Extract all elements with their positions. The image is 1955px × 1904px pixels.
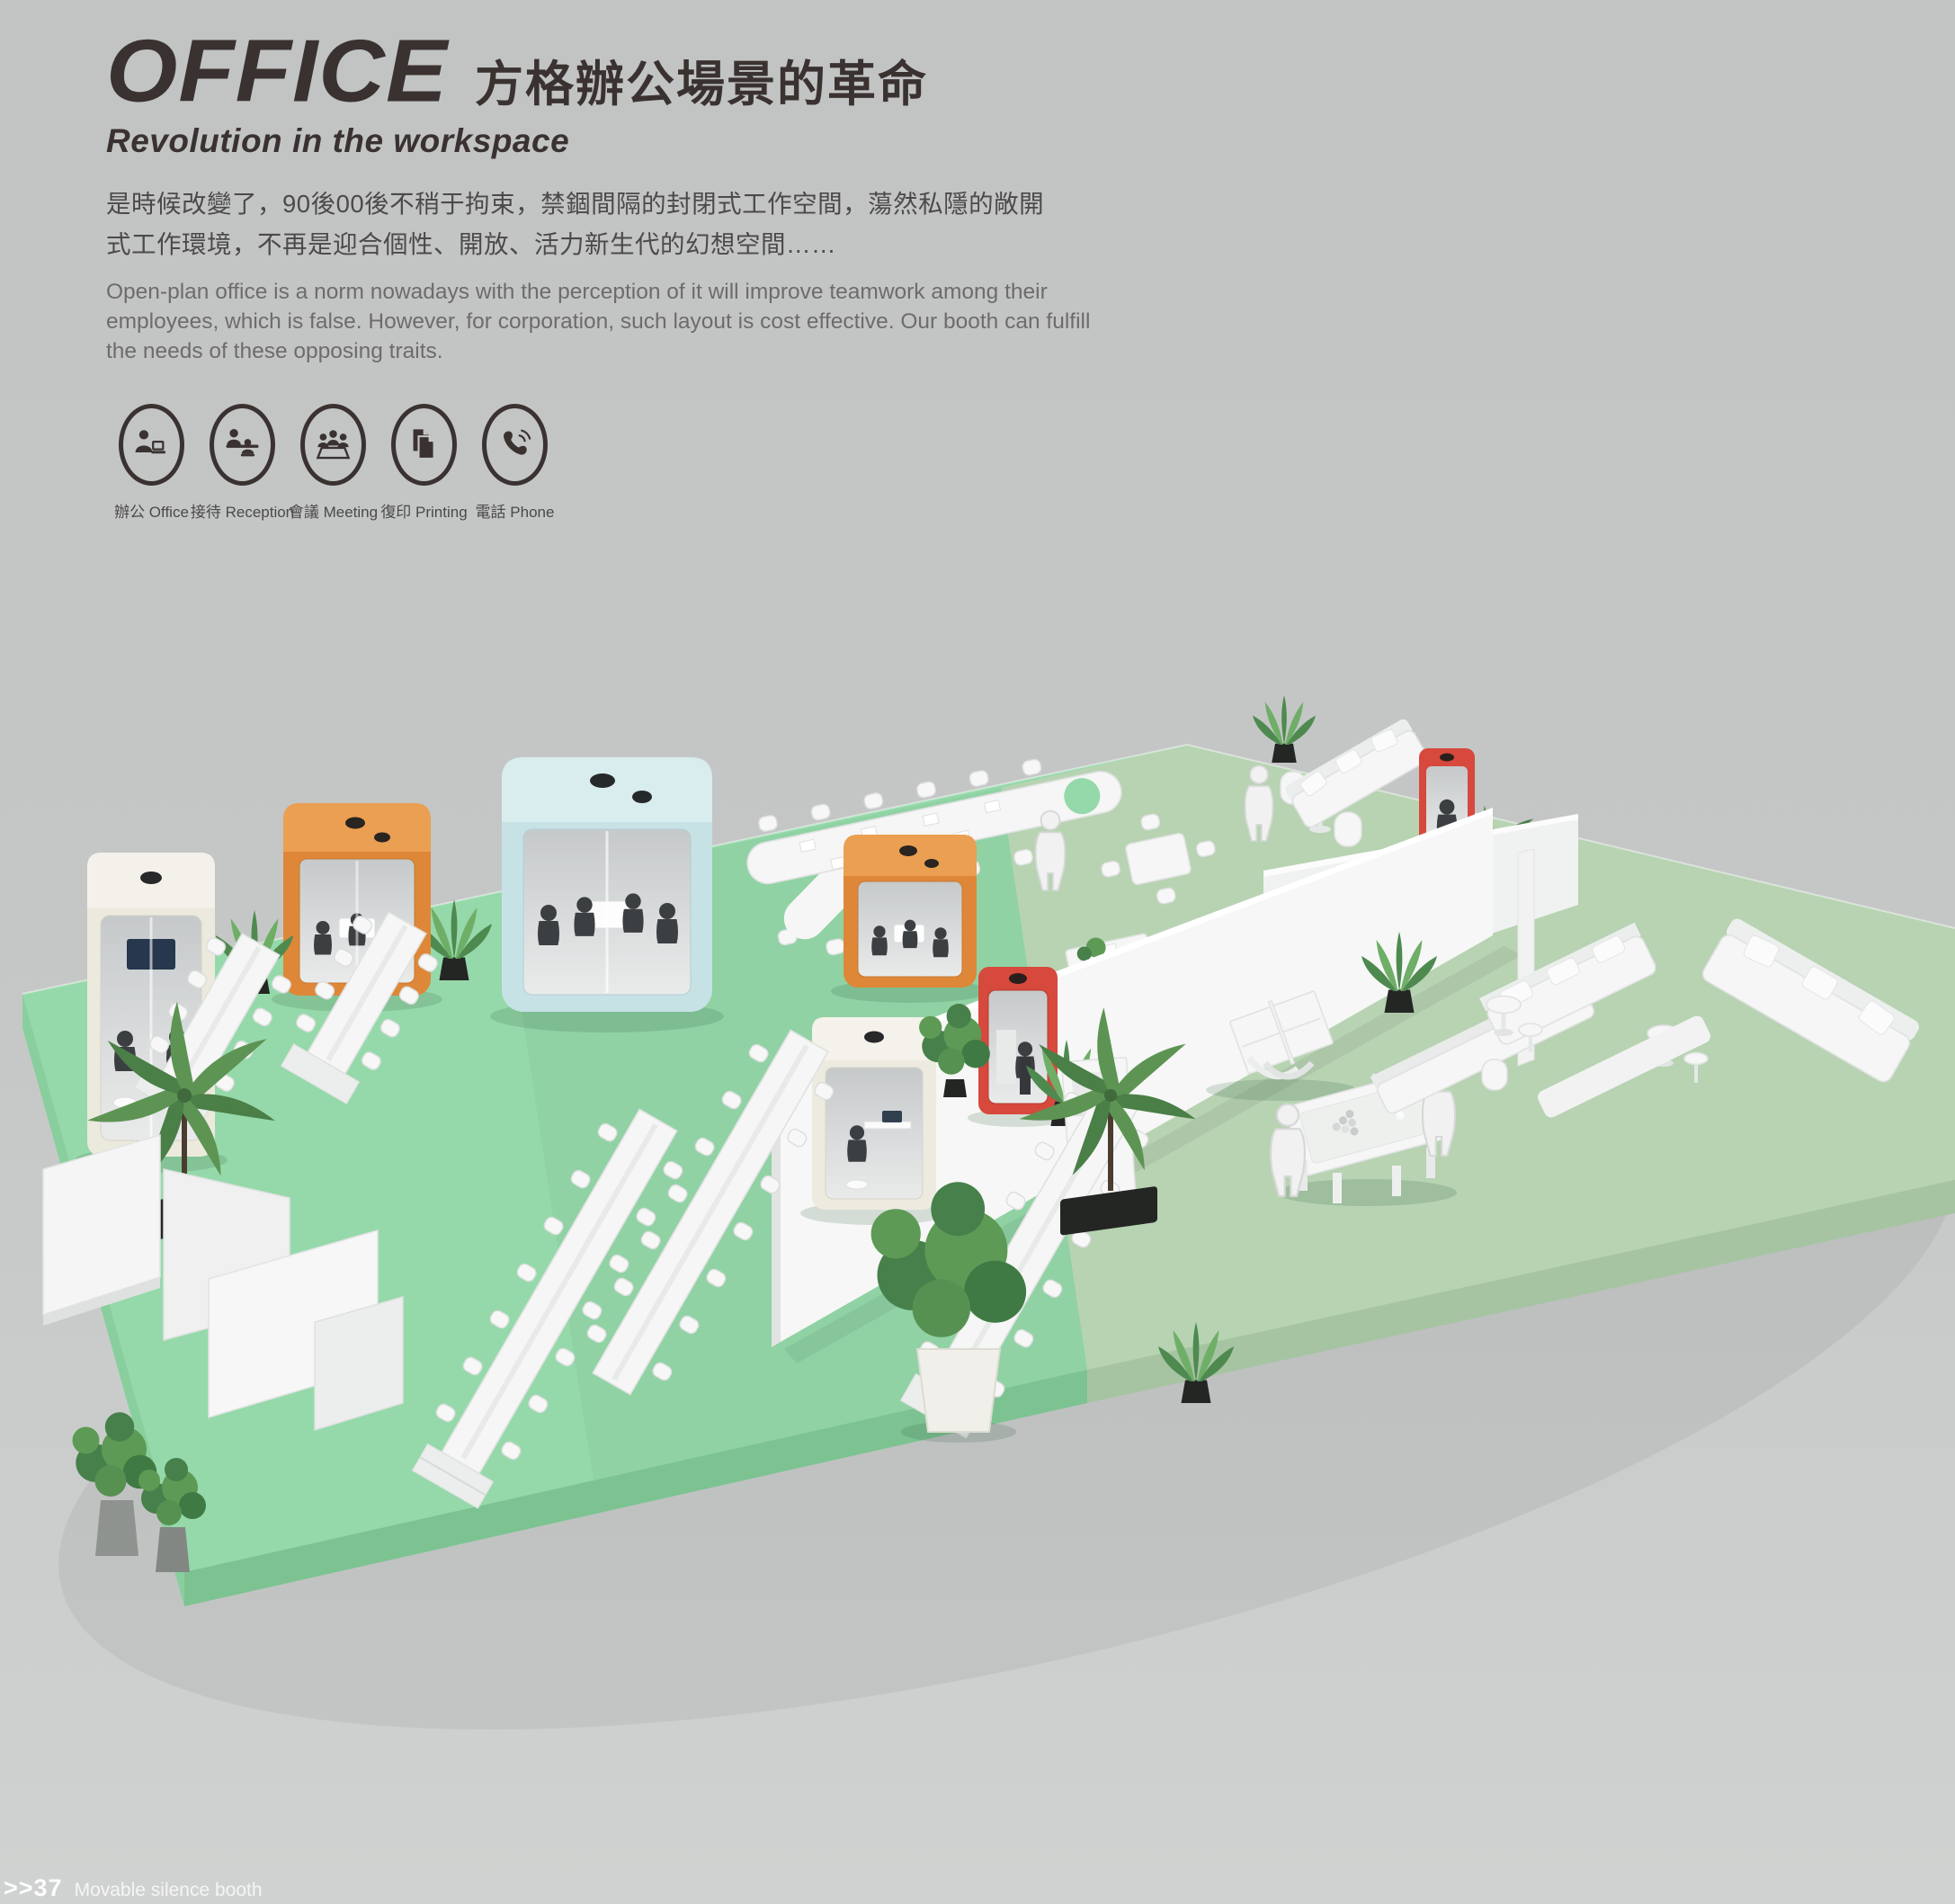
page-title-zh: 方格辦公場景的革命 (475, 28, 928, 115)
office-person-laptop-icon (119, 404, 184, 486)
reception-desk-icon (210, 404, 275, 486)
page-number: >>37 (4, 1874, 63, 1902)
header: OFFICE 方格辦公場景的革命 Revolution in the works… (106, 25, 1509, 522)
page-caption: Movable silence booth (75, 1880, 263, 1901)
ottoman-stool (1482, 1059, 1507, 1090)
booth-blue-meeting (490, 757, 724, 1032)
page-footer: >>37 Movable silence booth (4, 1874, 263, 1902)
booth-orange-meeting-center (831, 835, 989, 1003)
feature-phone: 電話 Phone (469, 404, 560, 522)
feature-reception: 接待 Reception (197, 404, 288, 522)
feature-label: 復印 Printing (380, 499, 467, 522)
feature-label: 接待 Reception (191, 499, 294, 522)
title-row: OFFICE 方格辦公場景的革命 (106, 25, 1509, 117)
brochure-page: { "page": { "title_en": "OFFICE", "title… (0, 0, 1955, 1904)
printing-documents-icon (391, 404, 457, 486)
feature-meeting: 會議 Meeting (288, 404, 379, 522)
intro-paragraph-zh: 是時候改變了，90後00後不稍于拘束，禁錮間隔的封閉式工作空間，蕩然私隱的敞開式… (106, 183, 1059, 264)
feature-label: 會議 Meeting (289, 499, 378, 522)
meeting-table-icon (300, 404, 366, 486)
feature-icons-row: 辦公 Office 接待 Reception (106, 404, 1509, 522)
page-subtitle: Revolution in the workspace (106, 122, 1509, 160)
ottoman-stool (1335, 812, 1361, 846)
feature-label: 辦公 Office (114, 499, 189, 522)
potted-plant (1253, 695, 1316, 763)
feature-office: 辦公 Office (106, 404, 197, 522)
phone-handset-icon (482, 404, 548, 486)
feature-label: 電話 Phone (476, 499, 555, 522)
page-title: OFFICE (106, 27, 448, 115)
feature-printing: 復印 Printing (379, 404, 469, 522)
intro-paragraph-en: Open-plan office is a norm nowadays with… (106, 277, 1095, 366)
